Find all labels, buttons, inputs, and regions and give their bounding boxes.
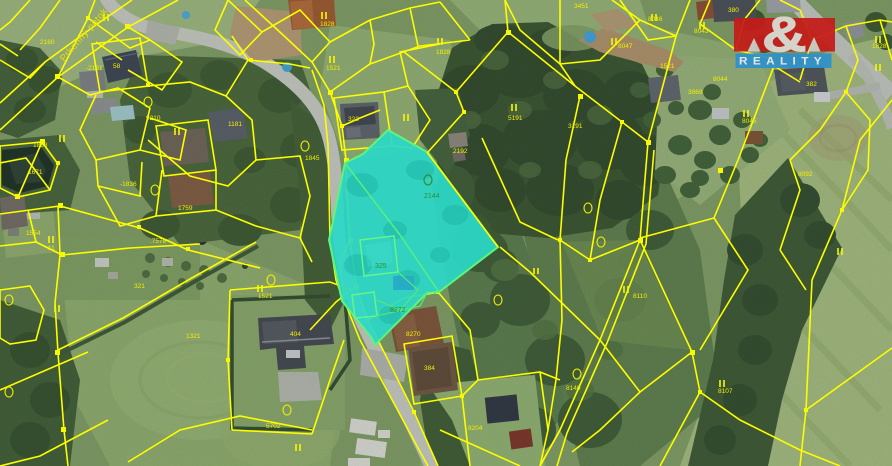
svg-text:384: 384 (424, 365, 435, 372)
svg-text:380: 380 (728, 7, 739, 14)
svg-text:1521: 1521 (660, 63, 675, 70)
svg-text:1181: 1181 (228, 121, 242, 128)
svg-text:.7578: .7578 (150, 238, 167, 245)
svg-text:2160: 2160 (40, 39, 55, 46)
svg-text:8204: 8204 (468, 425, 483, 432)
svg-text:8045: 8045 (742, 118, 757, 125)
svg-text:-2161: -2161 (86, 65, 103, 72)
svg-text:1521: 1521 (258, 293, 273, 300)
svg-text:8270: 8270 (406, 331, 421, 338)
svg-text:8047: 8047 (618, 43, 633, 50)
svg-text:3191: 3191 (568, 123, 583, 130)
svg-text:11: 11 (48, 245, 55, 252)
svg-text:8092: 8092 (798, 171, 813, 178)
svg-text:382: 382 (806, 81, 817, 88)
svg-text:3451: 3451 (574, 3, 589, 10)
svg-text:5702: 5702 (266, 423, 281, 430)
svg-text:1845: 1845 (305, 155, 320, 162)
svg-text:404: 404 (290, 331, 301, 338)
svg-text:1671: 1671 (28, 169, 43, 176)
svg-text:3869: 3869 (688, 89, 703, 96)
svg-text:1321: 1321 (186, 333, 201, 340)
svg-text:2144: 2144 (424, 193, 440, 200)
svg-text:8272: 8272 (390, 307, 406, 314)
svg-text:8044: 8044 (713, 76, 728, 83)
svg-text:1838: 1838 (33, 142, 48, 149)
svg-text:8043: 8043 (694, 28, 709, 35)
svg-text:8046: 8046 (648, 16, 663, 23)
svg-text:8110: 8110 (633, 293, 647, 300)
svg-text:325: 325 (375, 263, 387, 270)
svg-text:1521: 1521 (326, 65, 341, 72)
svg-text:58: 58 (113, 63, 121, 70)
svg-text:REALITY: REALITY (739, 56, 827, 68)
svg-text:2192: 2192 (453, 148, 468, 155)
svg-text:1828: 1828 (872, 43, 887, 50)
svg-text:1759: 1759 (178, 205, 193, 212)
svg-text:321: 321 (134, 283, 145, 290)
svg-text:1828: 1828 (320, 21, 335, 28)
svg-text:8140: 8140 (566, 385, 581, 392)
svg-text:9210: 9210 (146, 115, 161, 122)
svg-text:-1836: -1836 (120, 181, 137, 188)
svg-text:5191: 5191 (508, 115, 523, 122)
svg-text:1828: 1828 (436, 49, 451, 56)
svg-text:1554: 1554 (26, 230, 41, 237)
svg-text:323: 323 (348, 116, 359, 123)
svg-text:8107: 8107 (718, 388, 733, 395)
